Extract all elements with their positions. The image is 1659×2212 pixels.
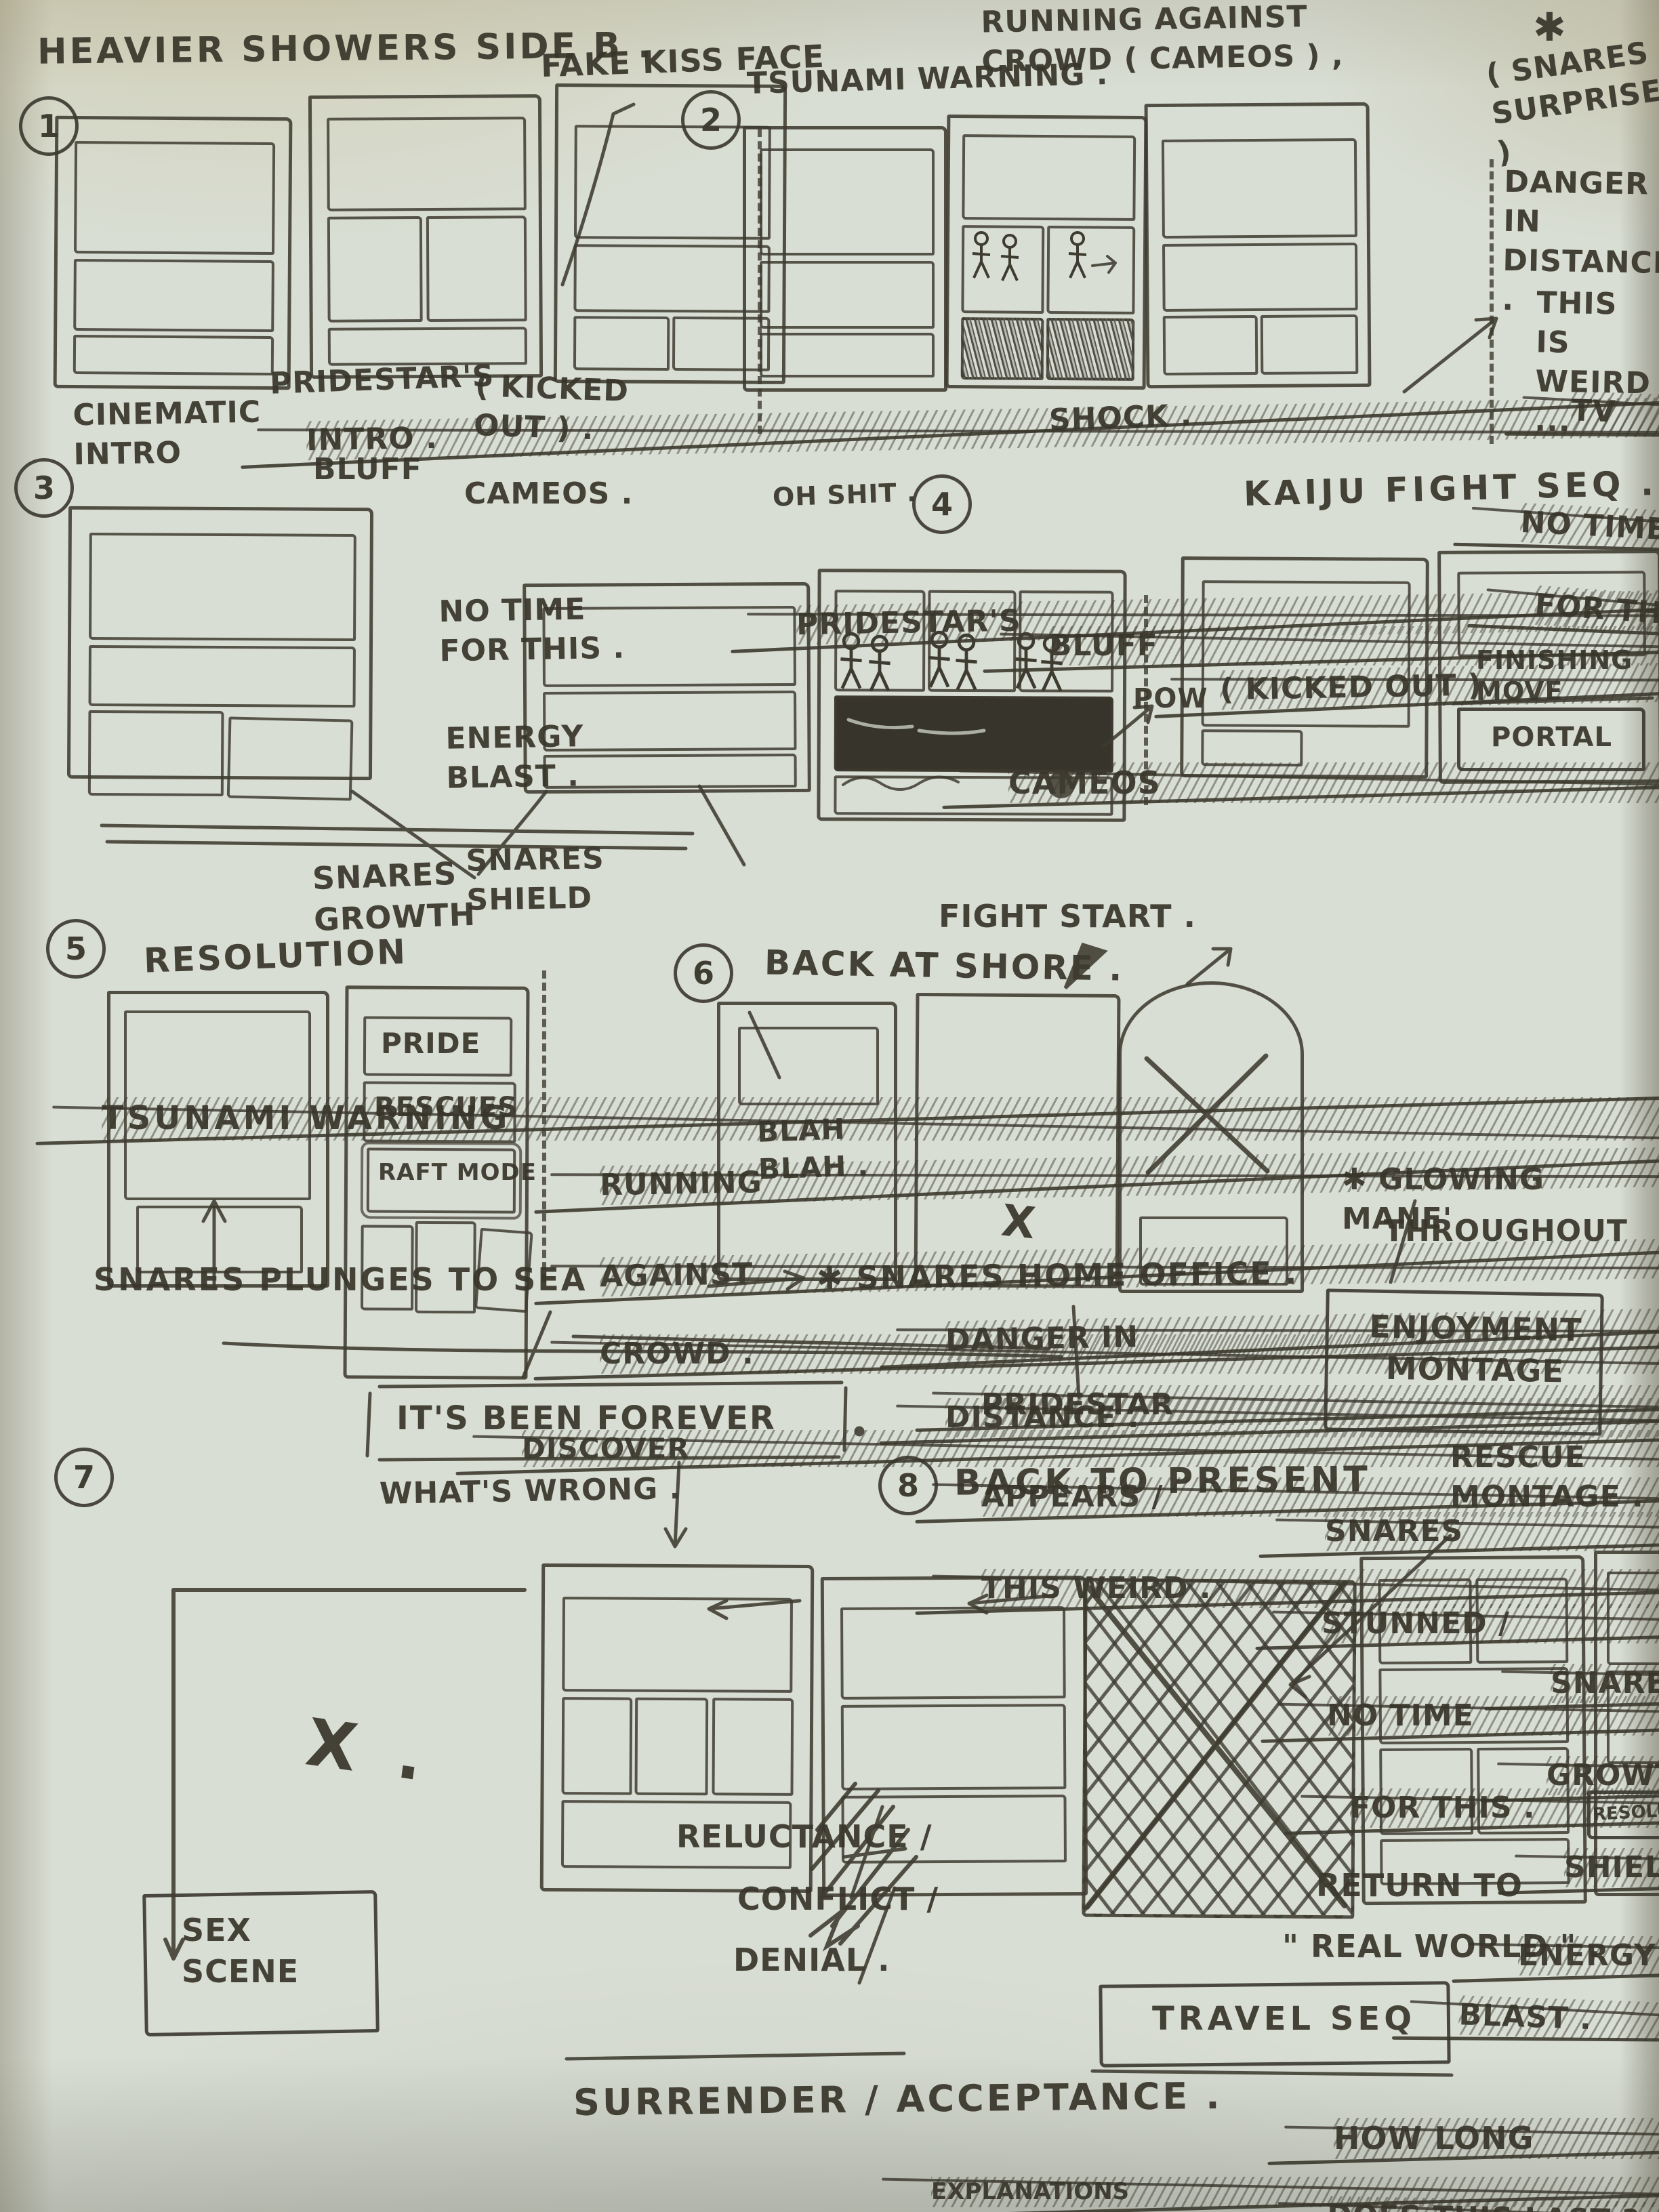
section8-thumbnail-crosshatch: [1082, 1578, 1356, 1919]
x-mark-section7: X .: [301, 1700, 438, 1802]
label-raft-mode: RAFT MODE: [378, 1158, 537, 1188]
section6-thumbnail-3: [1118, 981, 1304, 1293]
panel: [760, 148, 935, 255]
panel: [1607, 1671, 1659, 1764]
label-snares-home-office: ✱ SNARES HOME OFFICE .: [817, 1252, 1298, 1298]
label-conflict: CONFLICT /: [737, 1879, 939, 1920]
dashed-divider: [758, 129, 762, 434]
panel: [1607, 1572, 1659, 1665]
panel: [1162, 138, 1357, 239]
panel: [961, 317, 1044, 380]
section8-thumbnail-3: [1594, 1551, 1659, 1896]
panel: [124, 1010, 311, 1200]
panel: [1477, 1747, 1570, 1835]
section3-thumbnail-3: [817, 569, 1126, 822]
label-how-long-struck: HOW LONG: [1334, 2118, 1659, 2159]
x-mark-small: X: [999, 1193, 1039, 1253]
label-running-against-crowd: RUNNING AGAINST CROWD ( CAMEOS ) ,: [981, 0, 1344, 82]
panel: [573, 316, 670, 371]
label-rescue-montage: RESCUE MONTAGE .: [1450, 1438, 1644, 1517]
panel: [1046, 318, 1135, 381]
panel: [834, 775, 1113, 815]
section2-thumbnail-2: [945, 115, 1148, 390]
label-travel-seq: TRAVEL SEQ: [1152, 1998, 1416, 2041]
panel: [227, 716, 354, 800]
label-finishing-move: FINISHING MOVE: [1476, 645, 1633, 707]
panel: [1379, 1748, 1473, 1835]
dashed-divider: [1490, 159, 1494, 444]
label-cameos: CAMEOS .: [464, 474, 633, 514]
section2-thumbnail-1: [743, 126, 947, 392]
panel: [1163, 315, 1258, 375]
panel: [760, 261, 935, 329]
section1-thumbnail-1: [54, 116, 293, 390]
section1-thumbnail-2: [308, 94, 543, 379]
label-snares-struck-b: SNARES: [1325, 1512, 1659, 1551]
panel: [73, 259, 274, 332]
panel: [1019, 590, 1114, 692]
notebook-page: HEAVIER SHOWERS SIDE B . FAKE KISS FACE …: [0, 0, 1659, 2212]
panel: [1378, 1667, 1569, 1744]
circled-number-7: 7: [54, 1448, 114, 1507]
label-energy-blast: ENERGY BLAST .: [445, 717, 585, 798]
panel: [89, 533, 356, 641]
panel: [928, 590, 1017, 692]
circled-number-4: 4: [912, 474, 972, 534]
label-snares-shield: SNARES SHIELD: [466, 839, 605, 920]
panel: [74, 141, 275, 255]
panel: [1046, 226, 1135, 314]
section2-thumbnail-3: [1145, 102, 1372, 388]
panel: [573, 244, 771, 313]
label-denial: DENIAL .: [733, 1940, 890, 1981]
label-snares-plunges: SNARES PLUNGES TO SEA: [94, 1259, 587, 1300]
label-resolution-5: RESOLUTION: [143, 929, 408, 983]
circled-number-5: 5: [46, 919, 106, 979]
label-real-world: " REAL WORLD " .: [1282, 1926, 1601, 1967]
label-shock: SHOCK .: [1048, 396, 1193, 440]
panel: [834, 590, 926, 691]
section3-thumbnail-1: [67, 506, 373, 780]
label-rescues: RESCUES: [374, 1090, 518, 1126]
panel: [562, 1597, 793, 1693]
label-snares-surprised: ( SNARES SURPRISED ): [1483, 29, 1659, 173]
panel: [738, 1027, 879, 1105]
label-no-time-for-this: NO TIME FOR THIS .: [438, 590, 626, 672]
panel: [574, 125, 771, 240]
panel: [961, 225, 1044, 314]
panel: [841, 1704, 1067, 1790]
label-its-been-forever: IT'S BEEN FOREVER: [396, 1397, 776, 1440]
label-back-to-present: BACK TO PRESENT: [954, 1456, 1371, 1507]
panel: [327, 117, 527, 211]
circled-number-6: 6: [674, 943, 733, 1003]
panel: [327, 216, 423, 323]
panel: [73, 335, 274, 375]
label-throughout: THROUGHOUT: [1384, 1212, 1628, 1251]
label-enjoyment-montage: ENJOYMENT MONTAGE: [1368, 1306, 1582, 1392]
panel: [1202, 580, 1411, 728]
panel: [962, 134, 1136, 221]
label-back-at-shore: BACK AT SHORE .: [764, 940, 1124, 991]
section5-thumbnail-1: [107, 991, 329, 1288]
panel: [1162, 243, 1358, 312]
panel: [760, 333, 935, 377]
label-snares-growth: SNARES GROWTH: [312, 853, 476, 941]
label-blast-struck: BLAST .: [1458, 1996, 1659, 2093]
panel: [426, 216, 527, 322]
label-portal: PORTAL: [1491, 720, 1612, 756]
circled-number-3: 3: [14, 458, 74, 518]
section8-thumbnail-2: [1359, 1555, 1587, 1905]
label-kicked-out: ( KICKED OUT ) .: [473, 367, 630, 451]
panel: [1457, 571, 1646, 657]
panel: [561, 1697, 632, 1795]
label-pridestars: PRIDESTAR'S: [269, 356, 495, 404]
label-bluff: BLUFF: [313, 450, 422, 489]
panel: [834, 695, 1113, 772]
panel: [1201, 729, 1303, 766]
label-whats-wrong: WHAT'S WRONG .: [380, 1469, 682, 1514]
section4-thumbnail-1: [1180, 556, 1429, 779]
label-pride: PRIDE: [381, 1025, 480, 1062]
label-return-to: RETURN TO: [1316, 1865, 1523, 1906]
label-fight-start: FIGHT START .: [939, 896, 1196, 937]
label-sex-scene: SEX SCENE: [182, 1910, 299, 1992]
label-explanations-struck: EXPLANATIONS: [931, 2177, 1659, 2207]
label-cinematic-intro: CINEMATIC INTRO: [73, 393, 262, 475]
label-surrender-acceptance: SURRENDER / ACCEPTANCE .: [573, 2072, 1223, 2127]
label-blah-blah: BLAH BLAH .: [756, 1109, 869, 1188]
panel: [840, 1606, 1066, 1700]
label-reluctance: RELUCTANCE /: [676, 1816, 933, 1858]
panel: [1475, 1578, 1568, 1664]
panel: [1261, 314, 1359, 375]
panel: [89, 645, 356, 708]
dashed-divider: [542, 970, 546, 1282]
panel: [1378, 1578, 1472, 1664]
panel: [88, 710, 224, 796]
panel: [634, 1698, 708, 1796]
label-oh-shit: OH SHIT .: [772, 475, 918, 514]
panel: [712, 1698, 794, 1796]
